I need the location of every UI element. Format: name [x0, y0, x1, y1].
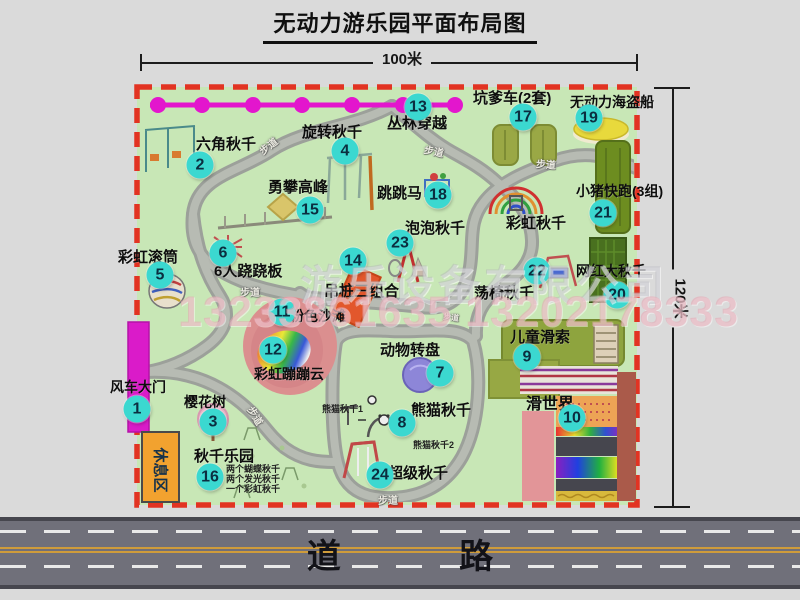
label-super-swing: 超级秋千	[388, 462, 448, 483]
label-rotating-swing: 旋转秋千	[302, 121, 362, 142]
badge-13: 13	[405, 94, 432, 121]
label-swing-park: 秋千乐园	[194, 445, 254, 466]
width-dimension-label: 100米	[373, 48, 431, 69]
swing-park-item-2: 两个发光秋千	[226, 474, 280, 484]
badge-6: 6	[210, 240, 237, 267]
page-title-wrap: 无动力游乐园平面布局图	[0, 6, 800, 44]
label-cherry-tree: 樱花树	[184, 392, 226, 412]
road: 道 路	[0, 517, 800, 589]
badge-21: 21	[590, 200, 617, 227]
badge-18: 18	[425, 182, 452, 209]
badge-7: 7	[427, 360, 454, 387]
walkway-label-7: 步道	[378, 492, 398, 507]
label-rainbow-cloud: 彩虹蹦蹦云	[254, 364, 324, 384]
badge-16: 16	[197, 464, 224, 491]
swing-park-item-1: 两个蝴蝶秋千	[226, 464, 280, 474]
label-panda-swing-1: 熊猫秋千1	[322, 402, 363, 415]
right-dimension-tick-bottom	[654, 506, 690, 508]
walkway-label-3: 步道	[536, 155, 557, 171]
page-title: 无动力游乐园平面布局图	[263, 6, 536, 44]
label-jumping-horse: 跳跳马	[377, 182, 422, 203]
badge-19: 19	[576, 105, 603, 132]
badge-17: 17	[510, 104, 537, 131]
label-bubble-swing: 泡泡秋千	[405, 217, 465, 238]
swing-park-item-3: 一个彩虹秋千	[226, 484, 280, 494]
badge-12: 12	[260, 337, 287, 364]
badge-10: 10	[559, 405, 586, 432]
badge-5: 5	[147, 262, 174, 289]
rest-area-label: 休息区	[151, 448, 172, 478]
badge-4: 4	[332, 138, 359, 165]
badge-2: 2	[187, 152, 214, 179]
badge-15: 15	[297, 197, 324, 224]
badge-9: 9	[514, 344, 541, 371]
road-label: 道 路	[307, 529, 548, 578]
label-panda-swing-2: 熊猫秋千2	[413, 438, 454, 451]
label-rainbow-swing: 彩虹秋千	[506, 212, 566, 233]
top-dimension-tick-right	[636, 54, 638, 71]
label-windmill-gate: 风车大门	[110, 377, 166, 397]
label-hexagon-swing: 六角秋千	[196, 133, 256, 154]
label-rainbow-roller: 彩虹滚筒	[118, 246, 178, 267]
badge-8: 8	[389, 410, 416, 437]
watermark-phone: 13233861635 13202178333	[178, 288, 739, 337]
badge-1: 1	[124, 396, 151, 423]
label-animal-turntable: 动物转盘	[380, 339, 440, 360]
label-kengdie-cart: 坑爹车(2套)	[473, 87, 551, 108]
top-dimension-tick-left	[140, 54, 142, 71]
badge-24: 24	[367, 462, 394, 489]
badge-3: 3	[200, 409, 227, 436]
label-swing-park-list: 两个蝴蝶秋千 两个发光秋千 一个彩虹秋千	[226, 464, 280, 494]
right-dimension-tick-top	[654, 87, 690, 89]
label-peak-climbing: 勇攀高峰	[268, 176, 328, 197]
label-piggy-run: 小猪快跑(3组)	[576, 181, 663, 201]
label-panda-swing: 熊猫秋千	[411, 399, 471, 420]
road-label-wrap: 道 路	[0, 521, 800, 585]
